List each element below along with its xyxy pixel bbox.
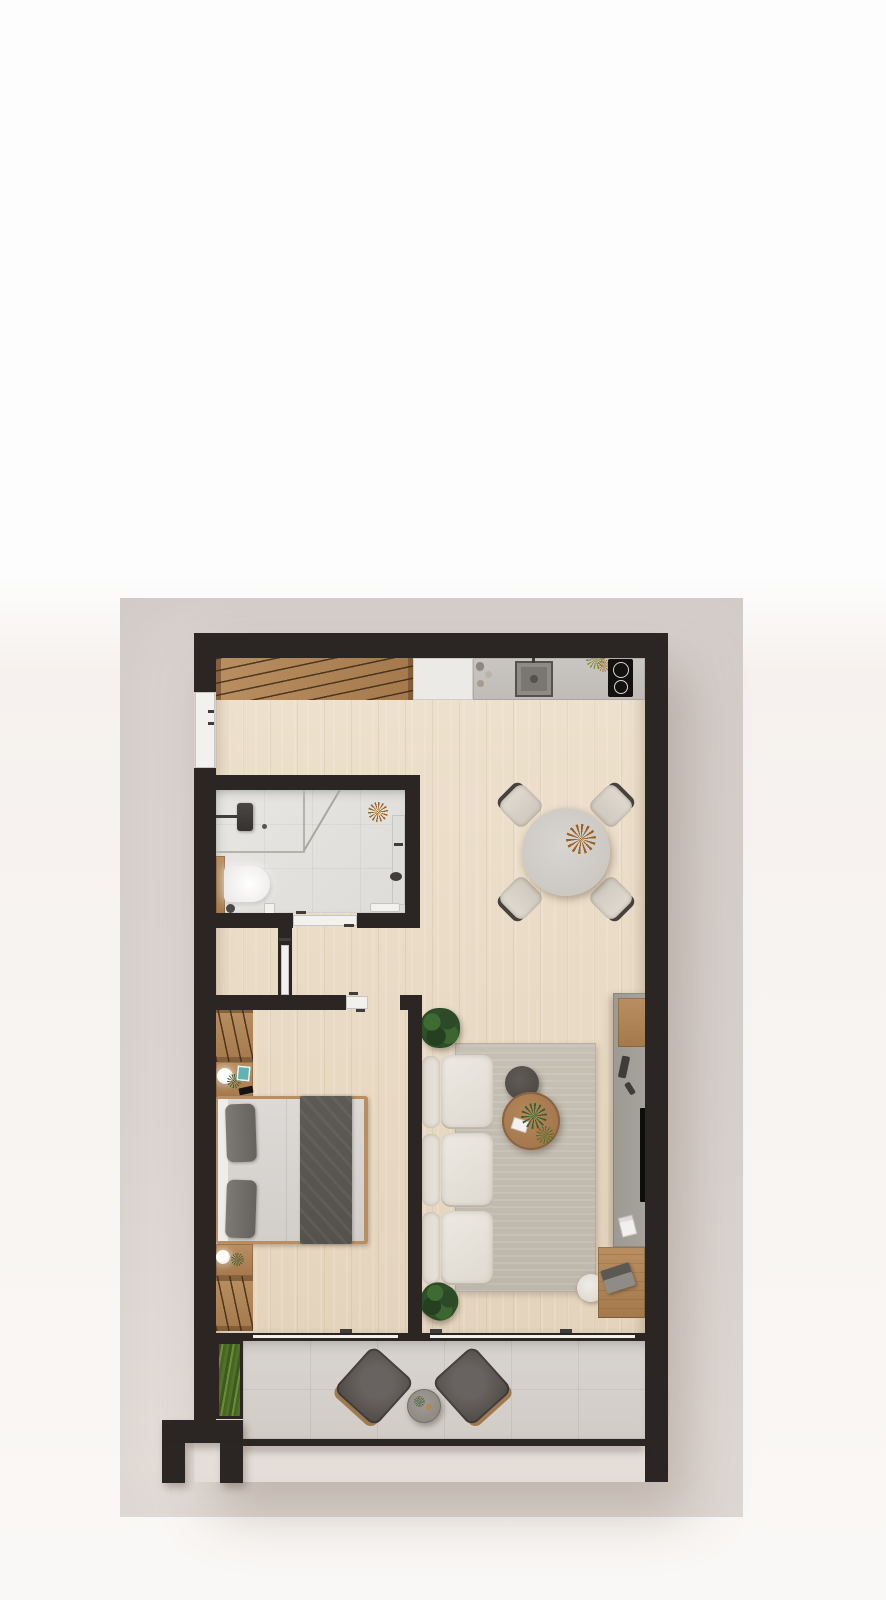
wall-bathroom-right [405, 775, 420, 928]
toilet-flush-button [226, 904, 235, 913]
sofa [422, 1055, 493, 1287]
balcony-side-table [407, 1389, 441, 1423]
pillow [225, 1179, 257, 1238]
closet-door-handle-icon [279, 938, 291, 941]
bathroom-door-handle-icon [296, 911, 306, 914]
sofa-back-cushion [422, 1134, 440, 1206]
bedroom-door-handle-icon [356, 1009, 365, 1012]
jar [476, 662, 484, 670]
entry-wardrobe [216, 658, 413, 700]
sliding-glass-pane [430, 1335, 635, 1338]
vanity-counter [392, 815, 405, 905]
exterior-wall-stub-right [220, 1443, 243, 1483]
closet-pocket-door [281, 945, 289, 995]
sliding-door-handle-icon [430, 1329, 442, 1333]
balcony-planter [216, 1341, 243, 1419]
burner [613, 662, 629, 678]
nightstand-plant [231, 1253, 244, 1266]
entrance-door-handle-icon [208, 710, 214, 713]
sofa-seat-cushion [441, 1133, 493, 1207]
sofa-seat-cushion [441, 1055, 493, 1129]
sliding-door-handle-icon [340, 1329, 352, 1333]
burner [614, 680, 628, 694]
exterior-wall-stub-bar [162, 1420, 243, 1443]
bedroom-door [346, 996, 368, 1009]
entrance-door-handle-icon [208, 722, 214, 725]
sliding-glass-pane [253, 1335, 398, 1338]
sliding-door-handle-icon [560, 1329, 572, 1333]
wall-bathroom-bottom-left [216, 913, 293, 928]
sofa-back-cushion [422, 1212, 440, 1284]
bathroom-door-handle-icon [344, 924, 354, 927]
table-plant-pot [414, 1396, 425, 1407]
bedroom-wardrobe-bottom [216, 1276, 253, 1331]
shower-glass-line [303, 790, 305, 852]
jar [477, 680, 484, 687]
double-bed [216, 1096, 368, 1244]
toilet [224, 866, 270, 902]
bedroom-door-handle-icon [349, 992, 358, 995]
exterior-wall-stub-left [162, 1443, 185, 1483]
entrance-door [195, 692, 215, 768]
vanity-faucet-icon [394, 843, 403, 846]
bathroom-dried-flower [368, 802, 388, 822]
tall-cabinet [413, 658, 473, 700]
dining-table [522, 808, 610, 896]
potted-plant [420, 1008, 460, 1048]
shower-drain [262, 824, 267, 829]
table-plant-sprig [536, 1126, 554, 1144]
balcony-railing [243, 1439, 645, 1446]
sideboard-wood-tray [618, 998, 647, 1047]
wall-bedroom-top-left [216, 995, 346, 1010]
wall-top [194, 633, 668, 658]
wall-right [645, 633, 668, 1482]
mattress-seam [286, 1099, 287, 1241]
vanity-basin [390, 872, 402, 881]
wall-bedroom-living-divider [408, 995, 422, 1333]
teal-book [236, 1065, 250, 1081]
sofa-back-cushion [422, 1056, 440, 1128]
towel [370, 903, 400, 912]
jar [485, 671, 492, 678]
wall-bathroom-top [216, 775, 420, 790]
sink-drain [530, 675, 538, 683]
wall-left-upper [194, 633, 216, 692]
bed-throw-blanket [300, 1096, 352, 1244]
bedroom-wardrobe-top [216, 1008, 253, 1062]
sofa-seat-cushion [441, 1211, 493, 1285]
shower-head [237, 803, 253, 831]
table-lamp [216, 1250, 230, 1264]
shower-glass-line [216, 851, 305, 853]
floor-plan-scene [0, 0, 886, 1600]
table-cup [426, 1404, 432, 1410]
pillow [225, 1103, 257, 1162]
wall-bathroom-bottom-right [357, 913, 420, 928]
wall-left-lower [194, 768, 216, 1420]
dried-flower-centerpiece [566, 824, 596, 854]
